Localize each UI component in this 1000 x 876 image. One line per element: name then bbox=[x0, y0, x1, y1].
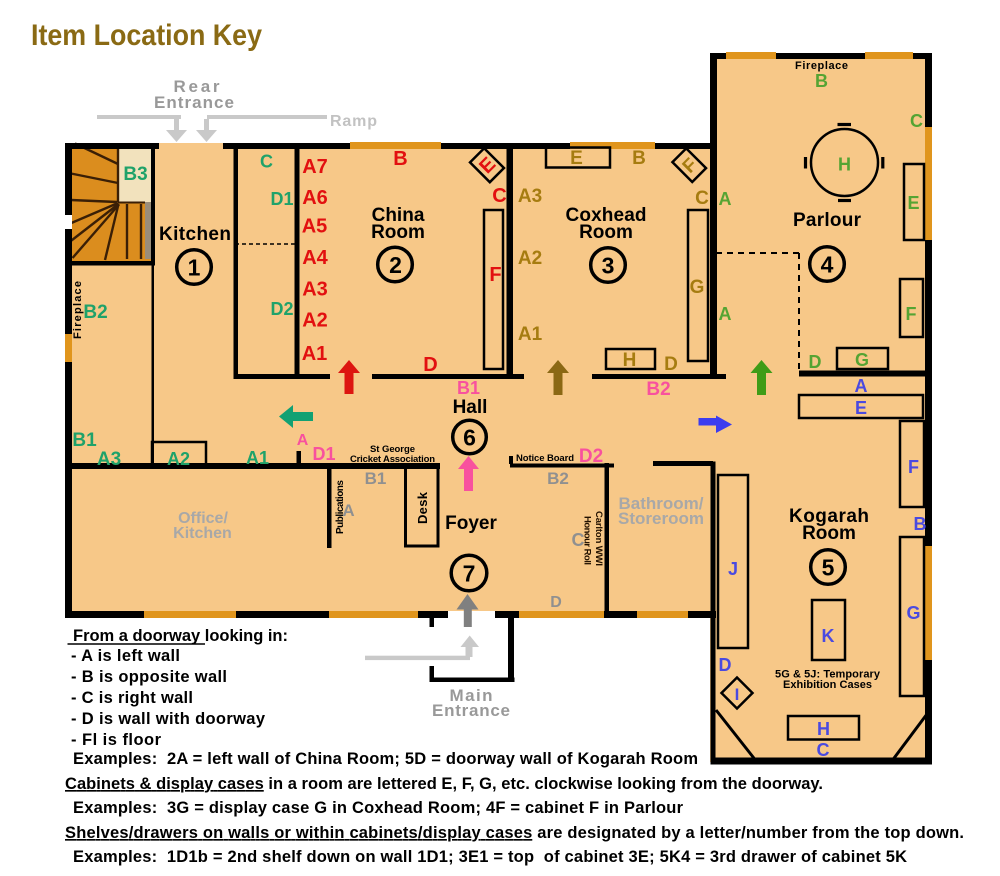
svg-text:Honour Roll: Honour Roll bbox=[582, 516, 593, 565]
svg-text:G: G bbox=[690, 277, 705, 298]
svg-text:A6: A6 bbox=[302, 187, 328, 209]
svg-text:B2: B2 bbox=[547, 469, 569, 488]
svg-text:A: A bbox=[855, 376, 868, 396]
svg-text:B: B bbox=[914, 514, 927, 534]
svg-text:Foyer: Foyer bbox=[445, 513, 497, 534]
svg-text:Room: Room bbox=[371, 222, 425, 243]
svg-text:D1: D1 bbox=[270, 189, 293, 209]
svg-text:Examples: 2A = left wall of C: Examples: 2A = left wall of China Room; … bbox=[73, 750, 698, 768]
svg-text:C: C bbox=[492, 185, 506, 207]
svg-text:A3: A3 bbox=[518, 186, 542, 207]
svg-text:- C is right wall: - C is right wall bbox=[71, 689, 193, 707]
svg-text:Entrance: Entrance bbox=[154, 93, 234, 112]
svg-text:7: 7 bbox=[463, 561, 476, 587]
svg-text:Desk: Desk bbox=[415, 491, 430, 524]
svg-text:D: D bbox=[664, 354, 678, 375]
svg-text:B1: B1 bbox=[457, 378, 480, 398]
svg-text:Room: Room bbox=[802, 523, 856, 544]
svg-text:Ramp: Ramp bbox=[330, 113, 377, 130]
svg-text:Room: Room bbox=[579, 222, 633, 243]
svg-text:B2: B2 bbox=[83, 302, 107, 323]
svg-text:B2: B2 bbox=[646, 379, 670, 400]
svg-text:6: 6 bbox=[463, 425, 476, 451]
svg-text:F: F bbox=[906, 304, 917, 324]
svg-text:A3: A3 bbox=[302, 279, 328, 301]
svg-text:Kitchen: Kitchen bbox=[159, 224, 231, 245]
svg-text:Parlour: Parlour bbox=[793, 210, 862, 231]
svg-text:D: D bbox=[809, 352, 822, 372]
svg-text:- D is wall with doorway: - D is wall with doorway bbox=[71, 710, 266, 728]
svg-text:From a doorway looking in:: From a doorway looking in: bbox=[73, 627, 288, 645]
svg-text:Carlton WWI: Carlton WWI bbox=[593, 511, 604, 566]
svg-text:Cabinets & display cases in a: Cabinets & display cases in a room are l… bbox=[65, 775, 823, 793]
svg-text:B: B bbox=[815, 71, 828, 91]
svg-text:E: E bbox=[570, 148, 583, 169]
svg-text:2: 2 bbox=[389, 252, 402, 278]
svg-text:Notice Board: Notice Board bbox=[516, 453, 574, 464]
svg-text:Item Location Key: Item Location Key bbox=[31, 19, 262, 52]
svg-text:A2: A2 bbox=[167, 449, 190, 469]
svg-text:A1: A1 bbox=[302, 343, 328, 365]
svg-text:3: 3 bbox=[602, 253, 615, 279]
svg-text:A: A bbox=[719, 304, 732, 324]
svg-text:4: 4 bbox=[821, 252, 834, 278]
svg-text:- B is opposite wall: - B is opposite wall bbox=[71, 668, 227, 686]
svg-text:1: 1 bbox=[188, 255, 201, 281]
svg-text:K: K bbox=[822, 626, 835, 646]
svg-text:A2: A2 bbox=[518, 248, 542, 269]
svg-text:D2: D2 bbox=[579, 446, 603, 467]
svg-text:B1: B1 bbox=[365, 469, 387, 488]
svg-text:5: 5 bbox=[822, 555, 835, 581]
svg-text:- Fl is floor: - Fl is floor bbox=[71, 731, 162, 749]
svg-text:Storeroom: Storeroom bbox=[618, 509, 704, 528]
svg-text:- A is left wall: - A is left wall bbox=[71, 647, 180, 665]
svg-text:D2: D2 bbox=[270, 299, 293, 319]
svg-text:Shelves/drawers on walls or wi: Shelves/drawers on walls or within cabin… bbox=[65, 824, 964, 842]
svg-text:A5: A5 bbox=[302, 216, 328, 238]
svg-text:D1: D1 bbox=[312, 444, 335, 464]
svg-text:D: D bbox=[550, 594, 562, 611]
svg-text:C: C bbox=[695, 188, 709, 209]
svg-text:H: H bbox=[838, 155, 851, 175]
svg-text:B1: B1 bbox=[72, 430, 97, 451]
svg-text:D: D bbox=[423, 354, 437, 376]
svg-text:G: G bbox=[855, 350, 869, 370]
svg-text:H: H bbox=[817, 719, 830, 739]
svg-text:Examples: 3G = display case G: Examples: 3G = display case G in Coxhead… bbox=[73, 799, 684, 817]
svg-text:A7: A7 bbox=[302, 156, 328, 178]
svg-text:B: B bbox=[393, 148, 407, 170]
svg-text:B: B bbox=[632, 148, 646, 169]
svg-text:E: E bbox=[907, 193, 919, 213]
svg-text:D: D bbox=[719, 655, 732, 675]
svg-text:C: C bbox=[910, 111, 923, 131]
svg-text:A2: A2 bbox=[302, 310, 328, 332]
svg-text:Fireplace: Fireplace bbox=[72, 281, 84, 339]
svg-text:E: E bbox=[855, 398, 867, 418]
svg-text:J: J bbox=[728, 559, 738, 579]
svg-text:F: F bbox=[489, 264, 501, 286]
svg-text:I: I bbox=[735, 685, 740, 704]
svg-text:A1: A1 bbox=[518, 324, 543, 345]
svg-text:B3: B3 bbox=[123, 164, 147, 185]
svg-text:A3: A3 bbox=[97, 449, 121, 470]
svg-text:Fireplace: Fireplace bbox=[795, 60, 848, 72]
svg-text:Entrance: Entrance bbox=[432, 701, 510, 720]
svg-text:G: G bbox=[906, 603, 920, 623]
svg-text:F: F bbox=[908, 457, 919, 477]
svg-text:Exhibition Cases: Exhibition Cases bbox=[783, 679, 872, 691]
svg-text:A1: A1 bbox=[246, 448, 269, 468]
svg-text:A: A bbox=[719, 189, 732, 209]
svg-text:C: C bbox=[260, 152, 273, 172]
svg-text:C: C bbox=[817, 740, 830, 760]
svg-text:A4: A4 bbox=[302, 247, 328, 269]
svg-text:Examples: 1D1b = 2nd shelf do: Examples: 1D1b = 2nd shelf down on wall … bbox=[73, 848, 907, 866]
svg-text:Hall: Hall bbox=[453, 397, 488, 418]
svg-text:Cricket Association: Cricket Association bbox=[350, 454, 435, 465]
svg-text:A: A bbox=[297, 432, 309, 449]
svg-text:Publications: Publications bbox=[335, 480, 346, 534]
svg-text:Kitchen: Kitchen bbox=[173, 525, 232, 542]
svg-text:H: H bbox=[623, 350, 637, 371]
